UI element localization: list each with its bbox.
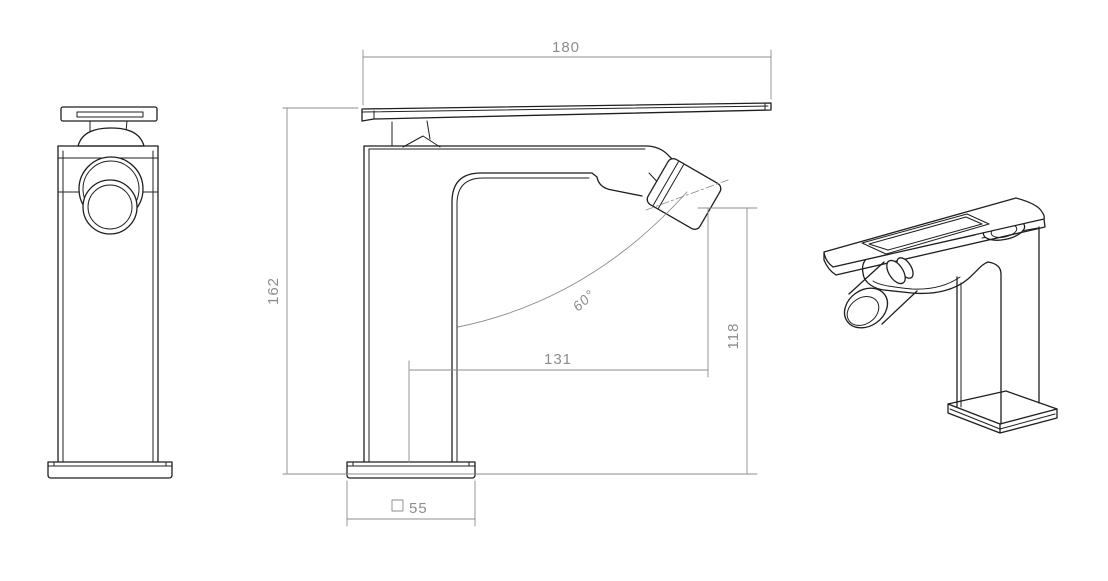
- dimension-118-label: 118: [725, 323, 742, 350]
- front-base: [48, 462, 172, 478]
- side-sprayhead: [645, 156, 723, 231]
- side-base: [347, 462, 475, 478]
- dimension-180: [363, 50, 771, 105]
- side-handle: [362, 103, 771, 121]
- dimension-annotations: [283, 50, 771, 526]
- front-view: [48, 107, 172, 478]
- square-symbol-icon: [392, 500, 403, 511]
- side-view: [347, 103, 771, 478]
- dimension-180-label: 180: [552, 39, 580, 56]
- front-handle-recess: [77, 112, 143, 117]
- perspective-view: [824, 198, 1057, 433]
- dimension-162: [283, 108, 358, 474]
- perspective-spout-arm: [863, 256, 988, 293]
- base-square-label: 55: [409, 500, 428, 517]
- dimension-131-label: 131: [544, 351, 572, 368]
- dimension-131: [409, 208, 708, 462]
- perspective-sprayhead: [837, 255, 917, 336]
- front-cartridge-dome: [78, 128, 144, 146]
- drawing-page: 180 162 131 118 60° 55: [0, 0, 1108, 581]
- spray-angle-label: 60°: [569, 286, 598, 314]
- technical-drawing-canvas: 180 162 131 118 60° 55: [0, 0, 1108, 581]
- dimension-162-label: 162: [265, 277, 282, 305]
